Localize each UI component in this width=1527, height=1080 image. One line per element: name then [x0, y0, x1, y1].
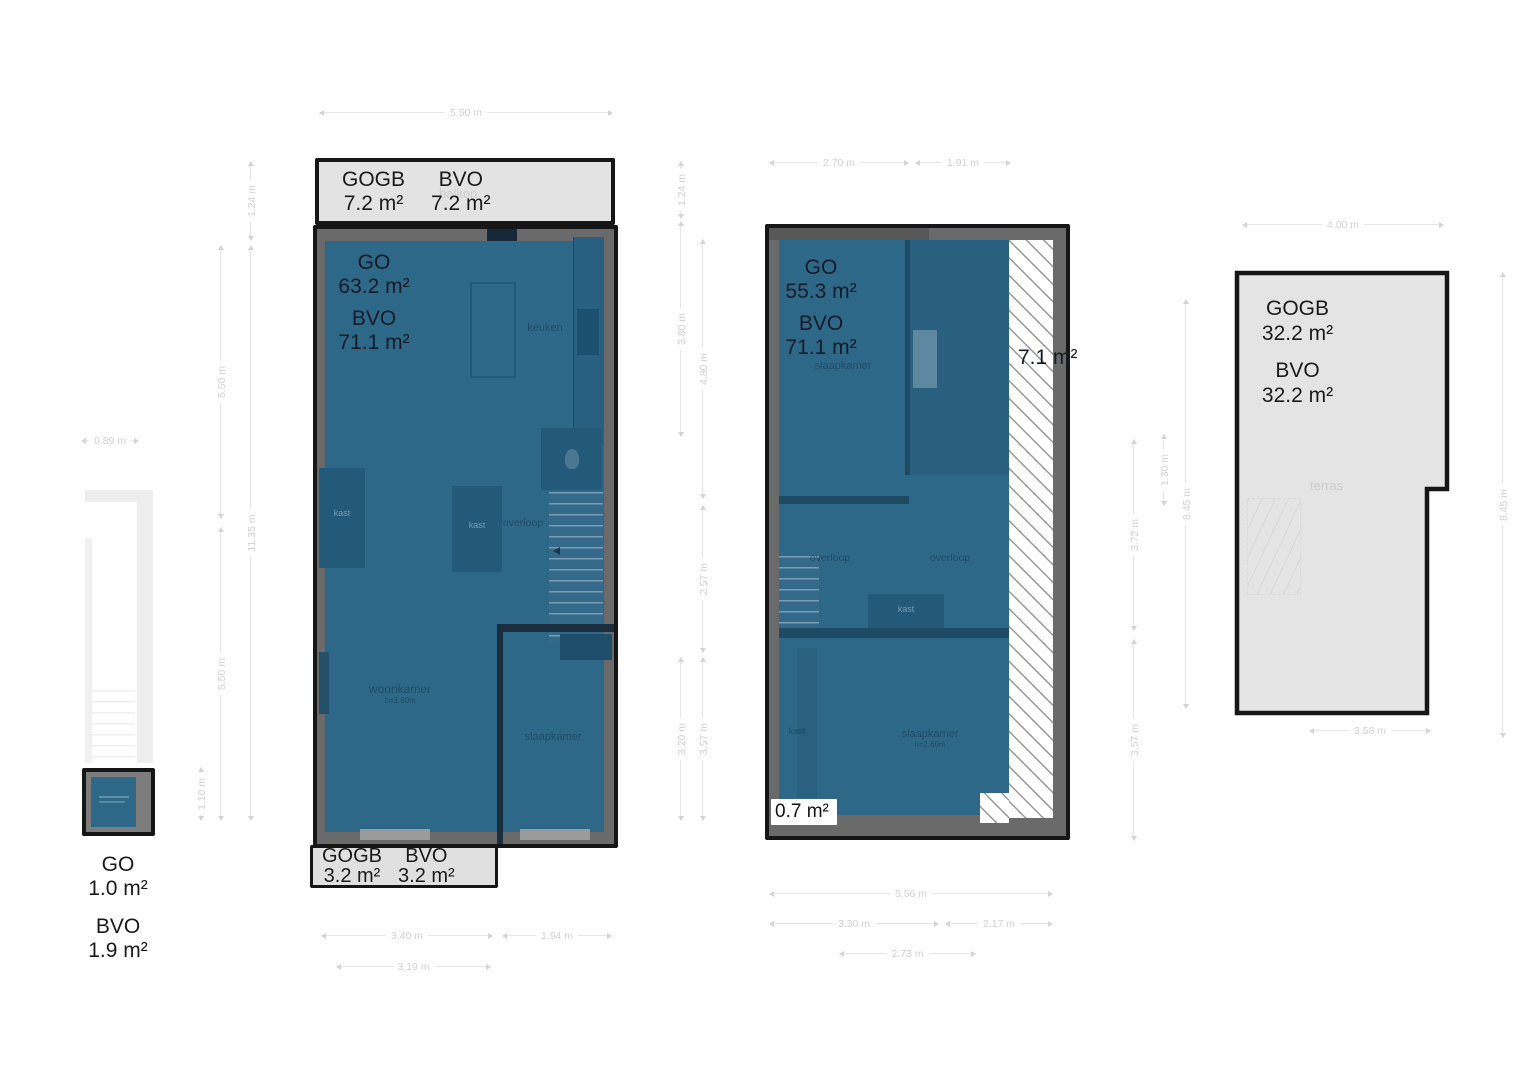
livingroom-sub-label: h=3.60m	[350, 696, 450, 705]
dim-a-height: 1.10 m	[200, 768, 201, 820]
unit-a-area-labels: GO 1.0 m² BVO 1.9 m²	[75, 853, 161, 963]
dim-b-bottom-3: 3.19 m	[337, 966, 490, 967]
floorplan-canvas: 0.89 m 1.10 m 5.50 m 1.24 m 5.50 m 5.50 …	[0, 0, 1527, 1080]
bedroom-closet	[560, 634, 612, 660]
bedroom-label: slaapkamer h=2.60m	[880, 728, 980, 749]
unit-a-plan	[82, 768, 155, 836]
dim-c-right-1: 3.72 m	[1133, 440, 1134, 630]
dim-d-right: 8.45 m	[1502, 273, 1503, 737]
closet-block: kast	[319, 468, 365, 568]
unit-b-balcony-bottom-labels: GOGB 3.2 m² BVO 3.2 m²	[322, 846, 455, 886]
partition-wall	[905, 240, 910, 475]
unit-b-entry-door	[487, 229, 517, 241]
unit-c-bvo-label: BVO	[775, 312, 867, 336]
dim-c-left-2: 4.80 m	[702, 240, 703, 498]
dim-b-left-upper: 5.50 m	[220, 246, 221, 518]
unit-a-go-label: GO	[75, 853, 161, 877]
staircase	[549, 492, 603, 642]
closet-label: kast	[319, 508, 365, 518]
dim-c-bottom-3: 2.17 m	[946, 923, 1052, 924]
bedroom-label: slaapkamer	[793, 360, 893, 372]
small-area-label: 0.7 m²	[771, 799, 837, 825]
unit-c-go-label: GO	[775, 256, 867, 280]
bvo-value: 3.2 m²	[398, 866, 455, 886]
unit-b-bvo-value: 71.1 m²	[328, 331, 420, 355]
landing-label: overloop	[900, 552, 1000, 564]
unit-b-go-value: 63.2 m²	[328, 275, 420, 299]
unit-d-area-labels: GOGB 32.2 m² BVO 32.2 m²	[1250, 296, 1345, 408]
dim-b-top: 5.50 m	[320, 112, 612, 113]
staircase	[779, 556, 819, 628]
dim-c-right-4: 8.45 m	[1185, 300, 1186, 708]
dim-b-bottom-2: 1.94 m	[503, 935, 611, 936]
unit-d-bvo-value: 32.2 m²	[1250, 383, 1345, 408]
gogb-label: GOGB	[322, 846, 382, 866]
terrace-room-label: terras	[1310, 478, 1343, 493]
livingroom-label: woonkamer h=3.60m	[350, 682, 450, 705]
dim-c-left-5: 3.57 m	[702, 658, 703, 820]
void-area-label: 7.1 m²	[1018, 346, 1088, 370]
unit-a-go-value: 1.0 m²	[75, 877, 161, 901]
dim-c-left-4: 3.20 m	[680, 658, 681, 820]
bvo-value: 7.2 m²	[431, 192, 491, 216]
bathroom-block	[541, 428, 602, 490]
closet-label: kast	[868, 604, 944, 614]
unit-d-gogb-label: GOGB	[1250, 296, 1345, 321]
window-gap	[520, 829, 590, 840]
unit-b-go-label: GO	[328, 251, 420, 275]
void-hatch-area	[980, 793, 1009, 823]
gogb-value: 7.2 m²	[342, 192, 405, 216]
unit-c-area-labels: GO 55.3 m² BVO 71.1 m²	[775, 256, 867, 360]
dim-c-bottom-4: 2.73 m	[840, 953, 975, 954]
unit-b-balcony-top-labels: GOGB 7.2 m² BVO 7.2 m²	[342, 168, 491, 216]
dim-b-balcony-height: 1.24 m	[250, 162, 251, 240]
stairs-arrow-icon	[553, 547, 560, 555]
dim-c-top-2: 1.91 m	[916, 162, 1010, 163]
radiator	[319, 652, 329, 714]
landing-label: overloop	[780, 552, 880, 564]
dim-c-top-1: 2.70 m	[770, 162, 908, 163]
dim-d-bottom: 3.58 m	[1310, 730, 1430, 731]
bedroom-label: slaapkamer	[503, 731, 603, 743]
dim-b-bottom-1: 3.40 m	[322, 935, 492, 936]
closet-block: kast	[868, 594, 944, 628]
terrace-stairs	[1247, 498, 1301, 595]
unit-b-bvo-label: BVO	[328, 307, 420, 331]
unit-a-bvo-value: 1.9 m²	[75, 939, 161, 963]
unit-a-text-line	[99, 796, 129, 798]
partition-wall	[779, 496, 909, 504]
landing-label: overloop	[473, 517, 573, 529]
dim-c-bottom-1: 5.56 m	[770, 893, 1052, 894]
unit-a-bvo-label: BVO	[75, 915, 161, 939]
closet-block: kast	[452, 486, 502, 572]
gogb-value: 3.2 m²	[322, 866, 382, 886]
unit-c-bvo-value: 71.1 m²	[775, 336, 867, 360]
kitchen-label: keuken	[495, 322, 595, 334]
corridor-outline-right	[137, 490, 153, 763]
dim-d-top: 4.00 m	[1243, 224, 1443, 225]
toilet	[565, 449, 579, 469]
corridor-stairs	[88, 690, 135, 763]
partition-wall	[497, 624, 614, 632]
dim-c-balcony-height: 1.24 m	[680, 162, 681, 218]
dim-c-bottom-2: 3.30 m	[770, 923, 938, 924]
unit-d-gogb-value: 32.2 m²	[1250, 321, 1345, 346]
unit-b-area-labels: GO 63.2 m² BVO 71.1 m²	[328, 251, 420, 355]
dim-c-left-3: 2.57 m	[702, 506, 703, 652]
dim-b-left-total: 11.35 m	[250, 246, 251, 820]
gogb-label: GOGB	[342, 168, 405, 192]
dim-c-right-3: 1.30 m	[1163, 435, 1164, 505]
bedroom-sub-label: h=2.60m	[880, 740, 980, 749]
dim-a-width: 0.89 m	[82, 440, 138, 441]
unit-a-text-line	[99, 801, 125, 803]
top-wall-dark	[769, 228, 929, 240]
dim-c-left-1: 3.80 m	[680, 222, 681, 436]
closet-label: kast	[777, 726, 817, 736]
wardrobe	[797, 648, 817, 798]
void-hatch-area	[1009, 240, 1053, 818]
bvo-label: BVO	[431, 168, 491, 192]
unit-c-go-value: 55.3 m²	[775, 280, 867, 304]
dim-c-right-2: 3.57 m	[1133, 640, 1134, 840]
dim-b-left-lower: 5.50 m	[220, 528, 221, 820]
partition-wall	[779, 628, 1009, 638]
door-panel	[913, 330, 937, 388]
window-gap	[360, 829, 430, 840]
unit-d-bvo-label: BVO	[1250, 358, 1345, 383]
bvo-label: BVO	[398, 846, 455, 866]
